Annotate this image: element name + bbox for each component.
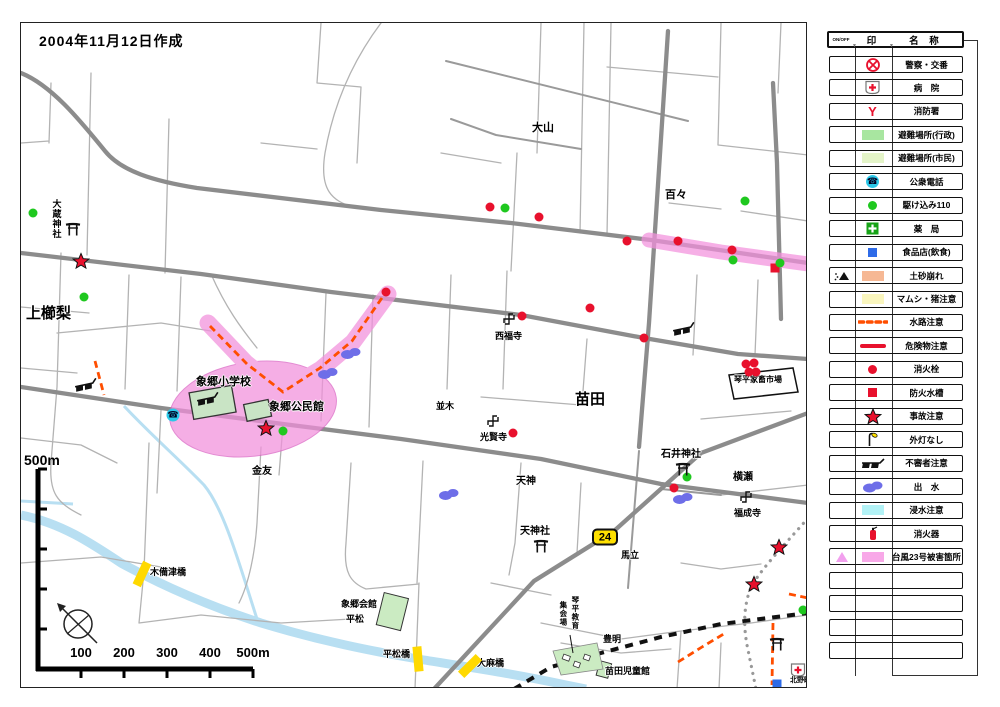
legend-header-name: 名 称 [890, 33, 962, 47]
fire-hydrant-icon [518, 312, 527, 321]
naeda-jidokan-label: 苗田児童館 [605, 667, 650, 676]
legend-row-label: 防火水槽 [891, 387, 962, 399]
kakekomi110-icon [279, 427, 288, 436]
fire-hydrant-icon [486, 203, 495, 212]
legend-onoff-cell[interactable] [830, 315, 854, 330]
zogo-kaikan-label: 象郷会館 [341, 600, 377, 609]
okura-jinja-label: 大蔵神社 [51, 199, 60, 239]
kakekomi110-icon [741, 197, 750, 206]
legend-row-label: 薬 局 [891, 223, 962, 235]
legend-onoff-cell[interactable] [830, 292, 854, 307]
temple-icon [503, 313, 516, 326]
filter-mark-arrow-icon[interactable]: ▼ [852, 43, 857, 49]
flood-out-icon [340, 347, 362, 360]
accident-star-icon [854, 408, 891, 425]
legend-row-empty [829, 572, 963, 589]
legend-row-tank: 防火水槽 [829, 384, 963, 401]
kakekomi110-icon [29, 209, 38, 218]
legend-header-mark: 印 [853, 33, 890, 47]
legend-onoff-cell[interactable] [830, 385, 854, 400]
scale-tick-label: 500m [236, 645, 269, 660]
police-icon [854, 57, 891, 73]
legend-row-label: 台風23号被害箇所 [891, 551, 962, 563]
kakekomi110-icon [501, 204, 510, 213]
kitanocho-label: 北野町 [790, 677, 807, 684]
legend-onoff-cell[interactable] [830, 245, 854, 260]
filter-name-arrow-icon[interactable]: ▼ [889, 43, 894, 49]
accident-star-icon [257, 420, 275, 437]
shrine-icon [770, 638, 785, 651]
legend-header-onoff: ON/OFF [829, 37, 853, 42]
legend-onoff-cell[interactable] [830, 432, 854, 447]
legend-row-blob: 出 水 [829, 478, 963, 495]
flood-out-icon [854, 480, 891, 493]
roads-layer [21, 23, 807, 688]
legend-row-pharmacy: 薬 局 [829, 220, 963, 237]
legend-onoff-cell[interactable] [830, 151, 854, 166]
legend-onoff-cell[interactable] [830, 503, 854, 518]
legend-row-label: 土砂崩れ [891, 270, 962, 282]
waterway-dash-swatch [854, 319, 891, 325]
fire-cistern-icon [854, 388, 891, 397]
evac-citizen-swatch [854, 153, 891, 163]
legend-row-label: 浸水注意 [891, 504, 962, 516]
legend-row-label: 警察・交番 [891, 59, 962, 71]
map-created-date: 2004年11月12日作成 [39, 31, 184, 51]
landslide-icon [834, 270, 851, 281]
typhoon-damage-swatch [854, 552, 891, 562]
toyoakira-label: 豊明 [603, 635, 621, 644]
legend-onoff-cell[interactable] [830, 362, 854, 377]
fire-hydrant-icon [509, 429, 518, 438]
ishii-jinja-label: 石井神社 [661, 450, 701, 461]
shukaijo-label: 集会場 [559, 601, 567, 627]
zogo-kominkan-label: 象郷公民館 [269, 402, 324, 414]
tenjin-label: 天神 [516, 477, 536, 488]
kakekomi110-icon [799, 606, 808, 615]
hospital-icon [854, 80, 891, 95]
legend-onoff-cell[interactable] [830, 268, 854, 283]
legend-row-label: 出 水 [891, 481, 962, 493]
legend-row-phone: ☎公衆電話 [829, 173, 963, 190]
safety-map-page: 2004年11月12日作成 24 500m 100200300400500m 上… [0, 0, 1000, 707]
fukuseiji-label: 福成寺 [734, 509, 761, 518]
legend-row-hydrant: 消火栓 [829, 361, 963, 378]
legend-onoff-cell[interactable] [830, 338, 854, 353]
kakekomi110-icon [776, 259, 785, 268]
legend-onoff-cell[interactable] [830, 57, 854, 72]
kotohira-kachiku-ichiba-label: 琴平家畜市場 [734, 376, 782, 384]
route-24-badge: 24 [592, 529, 618, 546]
scale-tick-label: 200 [113, 645, 135, 660]
public-phone-icon: ☎ [167, 409, 180, 422]
legend-row-label: 公衆電話 [891, 176, 962, 188]
fire-hydrant-icon [752, 368, 761, 377]
legend-onoff-cell[interactable] [830, 620, 854, 635]
naeda-label: 苗田 [575, 392, 605, 408]
shrine-icon [534, 540, 549, 553]
dodo-label: 百々 [665, 190, 687, 202]
oyama-label: 大山 [532, 123, 554, 135]
flood-out-icon [672, 492, 694, 505]
legend-onoff-cell[interactable] [830, 573, 854, 588]
temple-icon [487, 415, 500, 428]
hospital-icon [790, 663, 807, 678]
legend-onoff-cell[interactable] [830, 409, 854, 424]
legend-row-evac1: 避難場所(行政) [829, 126, 963, 143]
legend-row-label: 駆け込み110 [891, 199, 962, 211]
legend-onoff-cell[interactable] [830, 80, 854, 95]
zogo-shogakko-label: 象郷小学校 [196, 377, 251, 389]
legend-row-empty [829, 619, 963, 636]
kakekomi110-icon [854, 201, 891, 210]
legend-header: ON/OFF 印 名 称 [827, 31, 964, 48]
map-canvas: 2004年11月12日作成 24 500m 100200300400500m 上… [20, 22, 807, 688]
no-streetlight-icon [854, 432, 891, 447]
yokoze-label: 横瀬 [733, 473, 753, 484]
landslide-swatch [854, 271, 891, 281]
typhoon-triangle-icon [835, 551, 849, 563]
temple-icon [740, 491, 753, 504]
flood-warning-swatch [854, 505, 891, 515]
legend-row-label: 外灯なし [891, 434, 962, 446]
hiramatsubashi-label: 平松橋 [383, 650, 410, 659]
legend-row-label: 避難場所(市民) [891, 152, 962, 164]
kibitsubashi-label: 木備津橋 [150, 568, 186, 577]
kamikushinashi-label: 上櫛梨 [26, 306, 71, 322]
legend-bracket-line [893, 675, 978, 676]
legend-row-empty [829, 595, 963, 612]
legend-onoff-cell[interactable] [830, 456, 854, 471]
legend-onoff-cell[interactable] [830, 549, 854, 564]
legend-row-sunglasses: 不審者注意 [829, 455, 963, 472]
namiki-label: 並木 [436, 402, 454, 411]
legend-row-lamp: 外灯なし [829, 431, 963, 448]
legend-onoff-cell[interactable] [830, 643, 854, 658]
fire-extinguisher-icon [854, 526, 891, 541]
legend-row-typhoonrect: 台風23号被害箇所 [829, 548, 963, 565]
legend-row-extinguisher: 消火器 [829, 525, 963, 542]
flood-out-icon [317, 367, 339, 380]
legend-onoff-cell[interactable] [830, 174, 854, 189]
legend-row-viper: マムシ・猪注意 [829, 291, 963, 308]
hazmat-line-swatch [854, 344, 891, 348]
fire-hydrant-icon [382, 288, 391, 297]
kanetomo-label: 金友 [252, 467, 272, 478]
suspicious-person-icon [854, 458, 891, 469]
evac-admin-swatch [854, 130, 891, 140]
legend-row-evac2: 避難場所(市民) [829, 150, 963, 167]
kakekomi110-icon [729, 256, 738, 265]
legend-row-firestation: Y消防署 [829, 103, 963, 120]
accident-star-icon [72, 253, 90, 270]
legend-row-label: マムシ・猪注意 [891, 293, 962, 305]
flood-out-icon [438, 488, 460, 501]
hiramatsu-label: 平松 [346, 615, 364, 624]
legend-onoff-cell[interactable] [830, 104, 854, 119]
public-phone-icon: ☎ [854, 175, 891, 188]
shrine-icon [676, 463, 691, 476]
fire-hydrant-icon [728, 246, 737, 255]
scale-tick-label: 100 [70, 645, 92, 660]
tenjinsha-label: 天神社 [520, 527, 550, 538]
fire-hydrant-icon [640, 334, 649, 343]
legend-row-waterway: 水路注意 [829, 314, 963, 331]
umatate-label: 馬立 [621, 551, 639, 560]
legend-row-label: 危険物注意 [891, 340, 962, 352]
map-drawing [21, 23, 807, 688]
kakekomi110-icon [80, 293, 89, 302]
legend-row-dot110: 駆け込み110 [829, 197, 963, 214]
food-store-icon [773, 680, 782, 689]
legend-row-hazmat: 危険物注意 [829, 337, 963, 354]
fire-hydrant-icon [854, 365, 891, 374]
accident-star-icon [770, 539, 788, 556]
fire-hydrant-icon [674, 237, 683, 246]
kotohira-kyoiku-label: 琴平教育 [571, 596, 579, 630]
legend-row-police: 警察・交番 [829, 56, 963, 73]
legend-row-label: 消火器 [891, 528, 962, 540]
legend-onoff-cell[interactable] [830, 221, 854, 236]
legend-onoff-cell[interactable] [830, 127, 854, 142]
legend-row-label: 病 院 [891, 82, 962, 94]
fire-hydrant-icon [623, 237, 632, 246]
pharmacy-icon [854, 222, 891, 235]
legend-row-landslide: 土砂崩れ [829, 267, 963, 284]
legend-row-floodrect: 浸水注意 [829, 502, 963, 519]
legend-bracket-line [977, 40, 978, 676]
scale-500m-label: 500m [24, 452, 60, 468]
fire-station-icon: Y [854, 105, 891, 118]
fire-hydrant-icon [586, 304, 595, 313]
legend-row-label: 消火栓 [891, 363, 962, 375]
legend-row-star: 事故注意 [829, 408, 963, 425]
viper-boar-swatch [854, 294, 891, 304]
compass-rose [57, 603, 97, 643]
kokenji-label: 光賢寺 [480, 433, 507, 442]
legend-onoff-cell[interactable] [830, 526, 854, 541]
legend-row-label: 水路注意 [891, 316, 962, 328]
shrine-icon [66, 223, 81, 236]
legend-row-label: 不審者注意 [891, 457, 962, 469]
food-store-icon [854, 248, 891, 257]
scale-tick-label: 300 [156, 645, 178, 660]
legend-onoff-cell[interactable] [830, 198, 854, 213]
legend-onoff-cell[interactable] [830, 479, 854, 494]
legend-row-foodstore: 食品店(飲食) [829, 244, 963, 261]
legend-row-label: 食品店(飲食) [891, 246, 962, 258]
fire-hydrant-icon [535, 213, 544, 222]
scale-tick-label: 400 [199, 645, 221, 660]
river-layer [21, 406, 586, 688]
saifukuji-label: 西福寺 [495, 332, 522, 341]
legend-bracket-line [964, 40, 978, 41]
legend-row-label: 避難場所(行政) [891, 129, 962, 141]
legend-row-label: 消防署 [891, 105, 962, 117]
legend-row-label: 事故注意 [891, 410, 962, 422]
fire-hydrant-icon [750, 359, 759, 368]
legend-row-empty [829, 642, 963, 659]
legend-row-hospital: 病 院 [829, 79, 963, 96]
accident-star-icon [745, 576, 763, 593]
legend-onoff-cell[interactable] [830, 596, 854, 611]
